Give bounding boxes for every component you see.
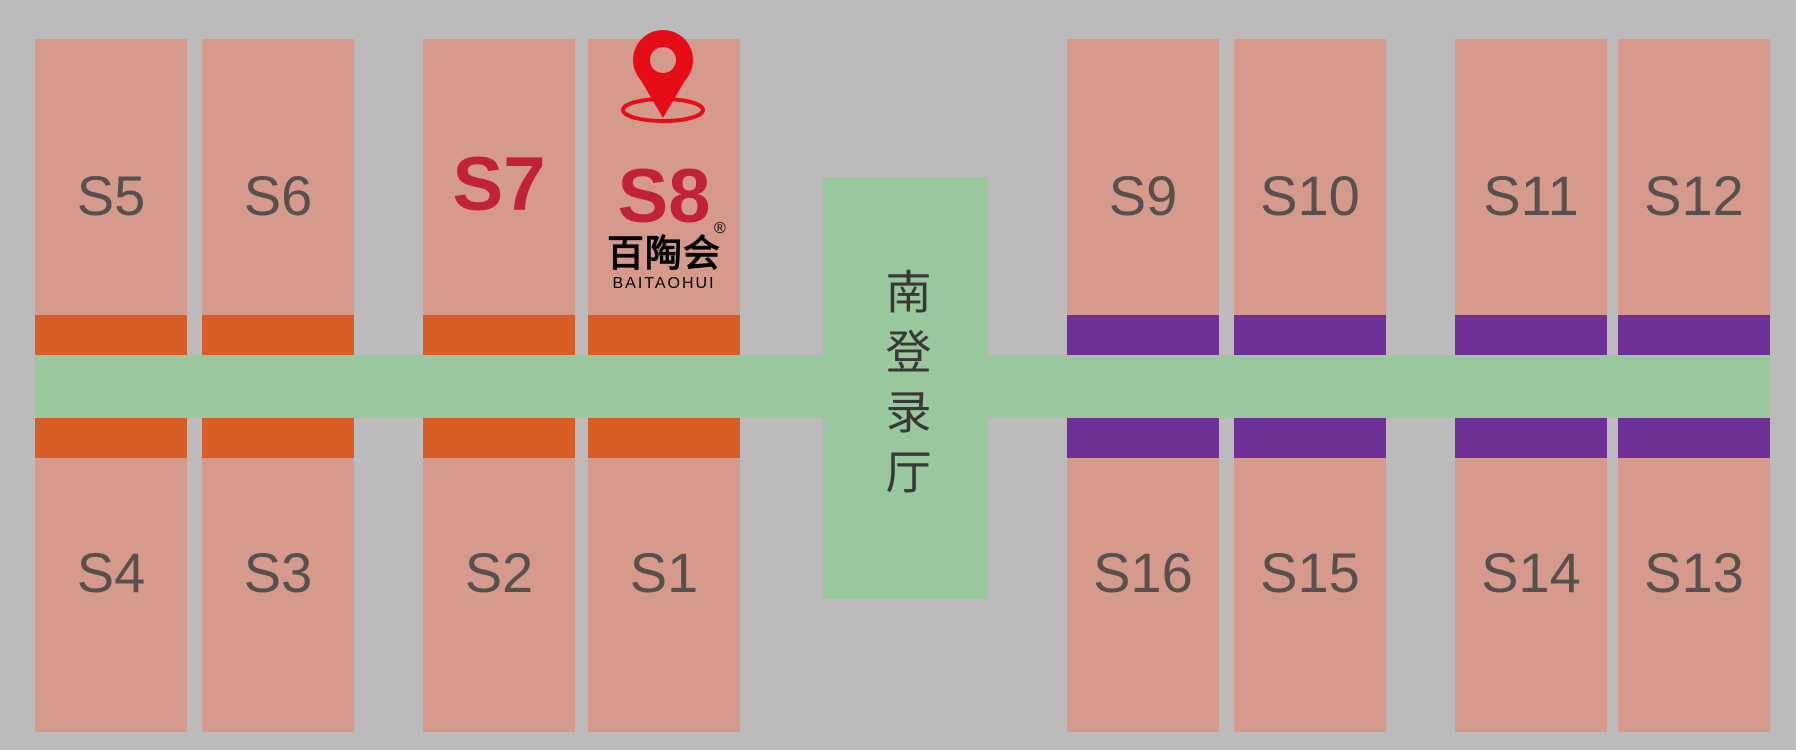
hall-s4-accent-bar — [35, 418, 187, 458]
hall-s1: S1 — [588, 418, 740, 732]
hall-s10-room: S10 — [1234, 39, 1386, 315]
hall-s7-label: S7 — [453, 147, 546, 223]
hall-s5-accent-bar — [35, 315, 187, 355]
hall-s11-accent-bar — [1455, 315, 1607, 355]
hall-s2-accent-bar — [423, 418, 575, 458]
hall-s12-label: S12 — [1644, 168, 1744, 224]
hall-s15-label: S15 — [1260, 545, 1360, 601]
hall-s12-room: S12 — [1618, 39, 1770, 315]
hall-s16-room: S16 — [1067, 458, 1219, 732]
hall-s11-room: S11 — [1455, 39, 1607, 315]
hall-s12: S12 — [1618, 39, 1770, 355]
hall-s2: S2 — [423, 418, 575, 732]
hall-s14-accent-bar — [1455, 418, 1607, 458]
hall-s10-accent-bar — [1234, 315, 1386, 355]
hall-s9: S9 — [1067, 39, 1219, 355]
hall-s3-room: S3 — [202, 458, 354, 732]
hall-s15: S15 — [1234, 418, 1386, 732]
hall-s3-accent-bar — [202, 418, 354, 458]
location-pin-icon — [603, 24, 723, 126]
hall-s6: S6 — [202, 39, 354, 355]
exhibition-floor-plan: 南登录厅 S5 S6 S7 S8 百陶会 ® BAITAOHUI S9 — [0, 0, 1796, 750]
hall-s11: S11 — [1455, 39, 1607, 355]
south-registration-hall: 南登录厅 — [823, 177, 988, 599]
hall-s2-label: S2 — [465, 545, 534, 601]
hall-s7-room: S7 — [423, 39, 575, 315]
hall-s3-label: S3 — [244, 545, 313, 601]
hall-s13: S13 — [1618, 418, 1770, 732]
baitaohui-logo-zh: 百陶会 — [588, 235, 740, 272]
hall-s16-accent-bar — [1067, 418, 1219, 458]
hall-s16-label: S16 — [1093, 545, 1193, 601]
south-registration-hall-label: 南登录厅 — [883, 268, 929, 508]
hall-s4-label: S4 — [77, 545, 146, 601]
hall-s1-accent-bar — [588, 418, 740, 458]
hall-s13-room: S13 — [1618, 458, 1770, 732]
hall-s9-room: S9 — [1067, 39, 1219, 315]
hall-s3: S3 — [202, 418, 354, 732]
hall-s2-room: S2 — [423, 458, 575, 732]
hall-s7: S7 — [423, 39, 575, 355]
hall-s13-accent-bar — [1618, 418, 1770, 458]
hall-s1-room: S1 — [588, 458, 740, 732]
hall-s15-room: S15 — [1234, 458, 1386, 732]
hall-s5-room: S5 — [35, 39, 187, 315]
hall-s15-accent-bar — [1234, 418, 1386, 458]
hall-s10-label: S10 — [1260, 168, 1360, 224]
hall-s11-label: S11 — [1483, 168, 1578, 224]
hall-s4: S4 — [35, 418, 187, 732]
baitaohui-logo-en: BAITAOHUI — [588, 276, 740, 292]
hall-s10: S10 — [1234, 39, 1386, 355]
hall-s4-room: S4 — [35, 458, 187, 732]
hall-s6-room: S6 — [202, 39, 354, 315]
hall-s7-accent-bar — [423, 315, 575, 355]
hall-s14-room: S14 — [1455, 458, 1607, 732]
hall-s14-label: S14 — [1481, 545, 1581, 601]
hall-s5-label: S5 — [77, 168, 146, 224]
hall-s16: S16 — [1067, 418, 1219, 732]
hall-s6-label: S6 — [244, 168, 313, 224]
hall-s5: S5 — [35, 39, 187, 355]
registered-trademark-icon: ® — [714, 221, 726, 237]
hall-s12-accent-bar — [1618, 315, 1770, 355]
hall-s6-accent-bar — [202, 315, 354, 355]
hall-s8-accent-bar — [588, 315, 740, 355]
hall-s9-label: S9 — [1109, 168, 1178, 224]
hall-s1-label: S1 — [630, 545, 699, 601]
hall-s14: S14 — [1455, 418, 1607, 732]
hall-s9-accent-bar — [1067, 315, 1219, 355]
hall-s13-label: S13 — [1644, 545, 1744, 601]
